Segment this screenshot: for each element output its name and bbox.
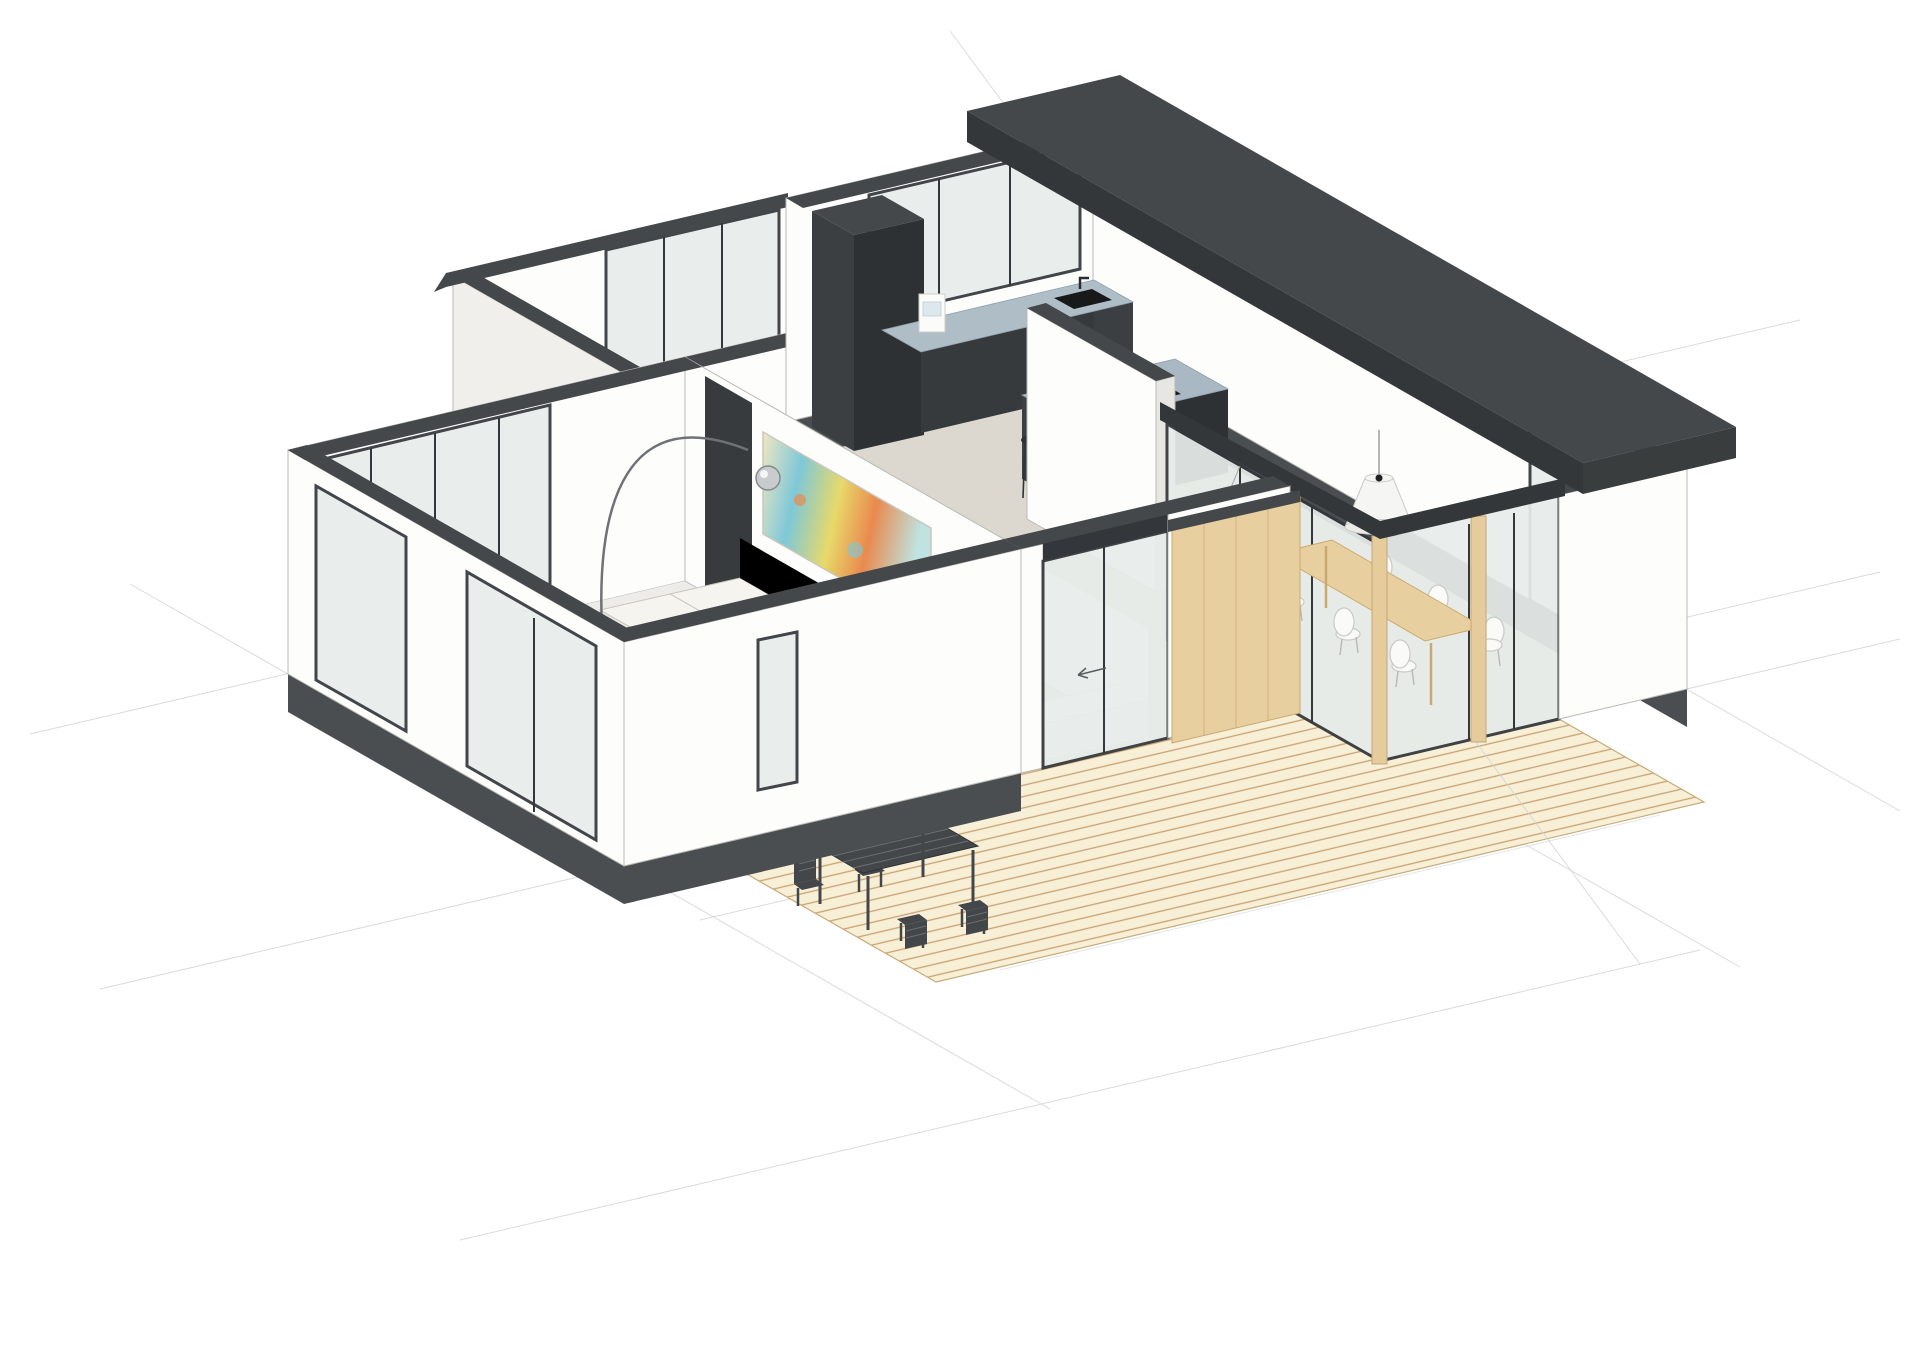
roof-parapet-miter (434, 273, 446, 292)
facade-pier (1021, 544, 1043, 773)
timber-post (1372, 536, 1387, 764)
painting-detail (847, 542, 863, 558)
gridline (460, 950, 1700, 1240)
timber-post (1471, 516, 1486, 742)
timber-sliding-door (1168, 490, 1300, 743)
painting-detail (794, 494, 806, 506)
kitchen-tall-cabinet (812, 195, 924, 451)
architectural-render-canvas (0, 0, 1920, 1358)
scene-root (30, 31, 1900, 1240)
se-corner-wall (1559, 465, 1687, 719)
isometric-floorplan-svg (0, 0, 1920, 1358)
narrow-window (758, 632, 797, 790)
lamp-chrome-shade (756, 466, 780, 490)
coffee-machine (919, 294, 945, 332)
glass-sliding-door (1043, 510, 1168, 768)
